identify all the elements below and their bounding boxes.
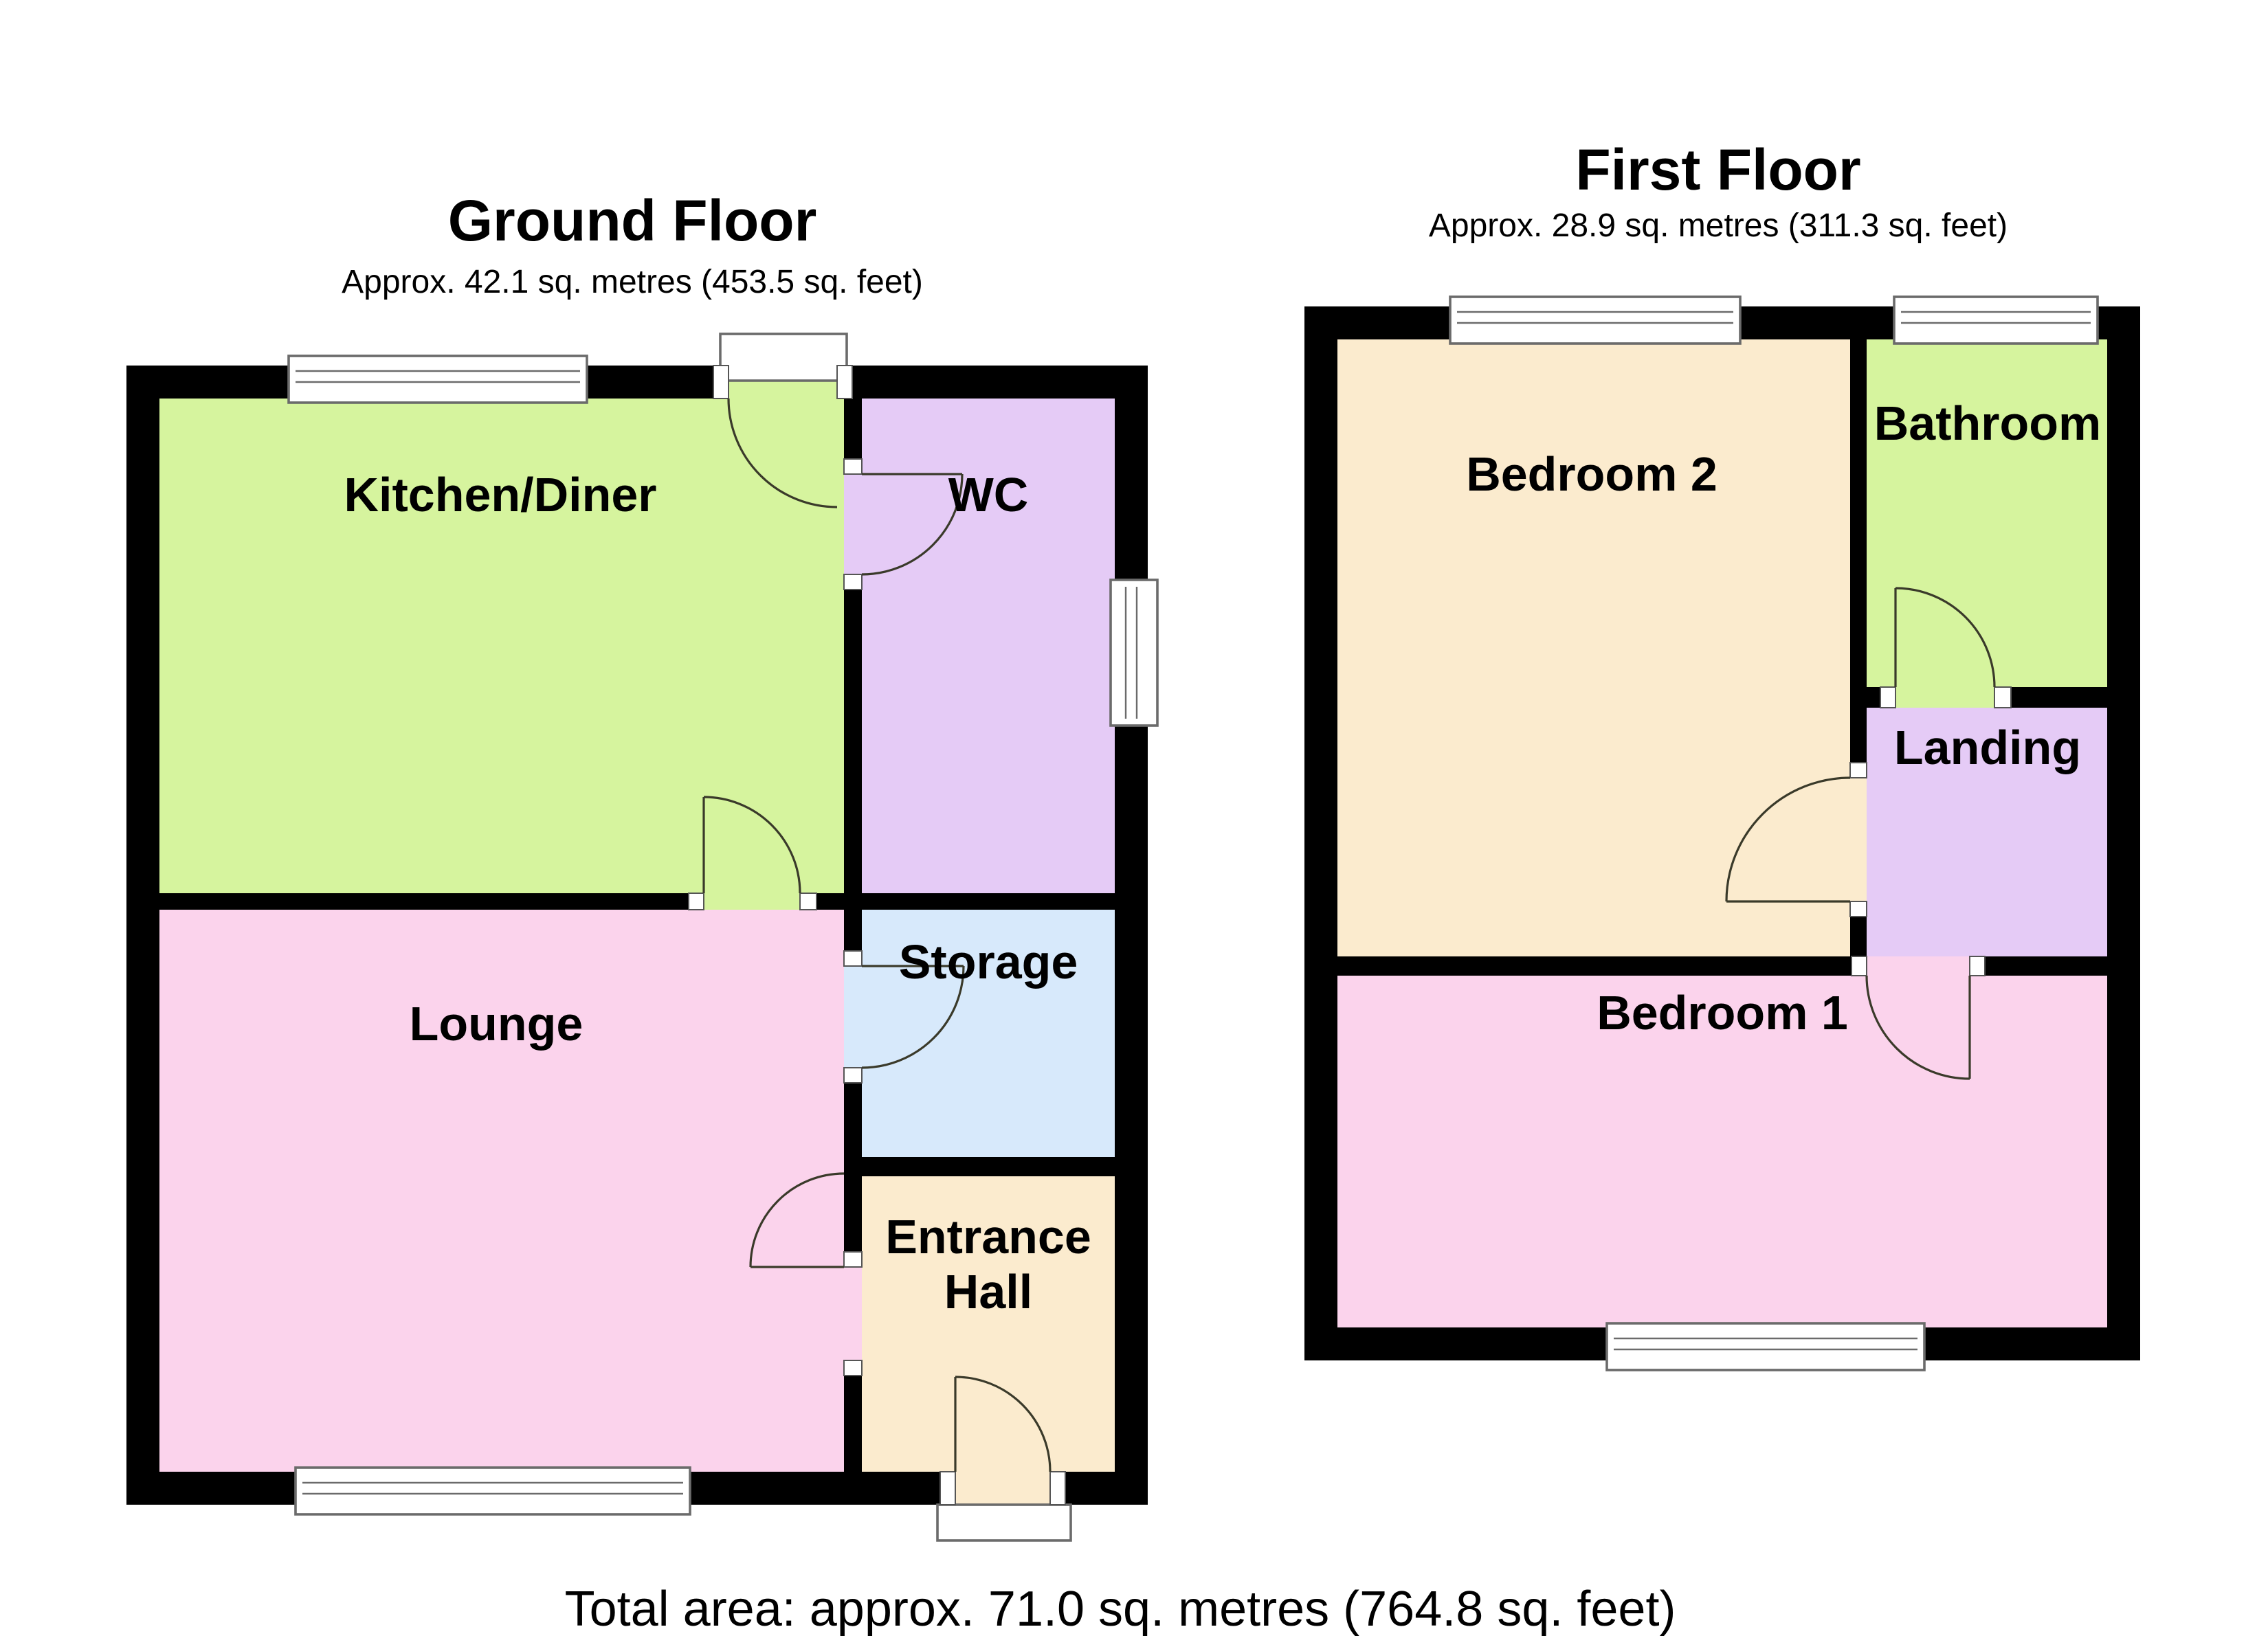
ground-floor-title: Ground Floor <box>448 188 817 253</box>
first-floor-plan: First Floor Approx. 28.9 sq. metres (311… <box>1304 137 2140 1370</box>
window-bedroom1-bottom <box>1607 1323 1924 1370</box>
label-bedroom-2: Bedroom 2 <box>1466 447 1717 501</box>
room-bedroom-2 <box>1337 339 1850 956</box>
total-area-label: Total area: approx. 71.0 sq. metres (764… <box>565 1582 1676 1637</box>
window-wc-right <box>1111 580 1157 726</box>
window-kitchen-top <box>289 356 587 403</box>
label-kitchen-diner: Kitchen/Diner <box>344 468 656 521</box>
svg-text:Entrance: Entrance <box>885 1210 1091 1264</box>
room-lounge <box>159 910 844 1472</box>
label-storage: Storage <box>899 935 1078 989</box>
window-bedroom2-top <box>1450 297 1740 344</box>
first-floor-title: First Floor <box>1575 137 1860 202</box>
window-lounge-bottom <box>296 1468 690 1514</box>
label-wc: WC <box>948 468 1029 521</box>
floorplan-page: Ground Floor Approx. 42.1 sq. metres (45… <box>0 0 2268 1649</box>
first-floor-subtitle: Approx. 28.9 sq. metres (311.3 sq. feet) <box>1429 207 2008 244</box>
ground-floor-plan: Ground Floor Approx. 42.1 sq. metres (45… <box>126 188 1157 1540</box>
ground-floor-subtitle: Approx. 42.1 sq. metres (453.5 sq. feet) <box>342 264 923 300</box>
label-landing: Landing <box>1894 721 2081 774</box>
room-bathroom <box>1867 339 2107 687</box>
svg-text:Hall: Hall <box>944 1265 1032 1319</box>
floorplan-canvas: Ground Floor Approx. 42.1 sq. metres (45… <box>0 0 2268 1649</box>
label-bathroom: Bathroom <box>1874 396 2102 450</box>
window-bathroom-top <box>1894 297 2098 344</box>
label-bedroom-1: Bedroom 1 <box>1597 986 1848 1040</box>
label-lounge: Lounge <box>410 997 583 1051</box>
